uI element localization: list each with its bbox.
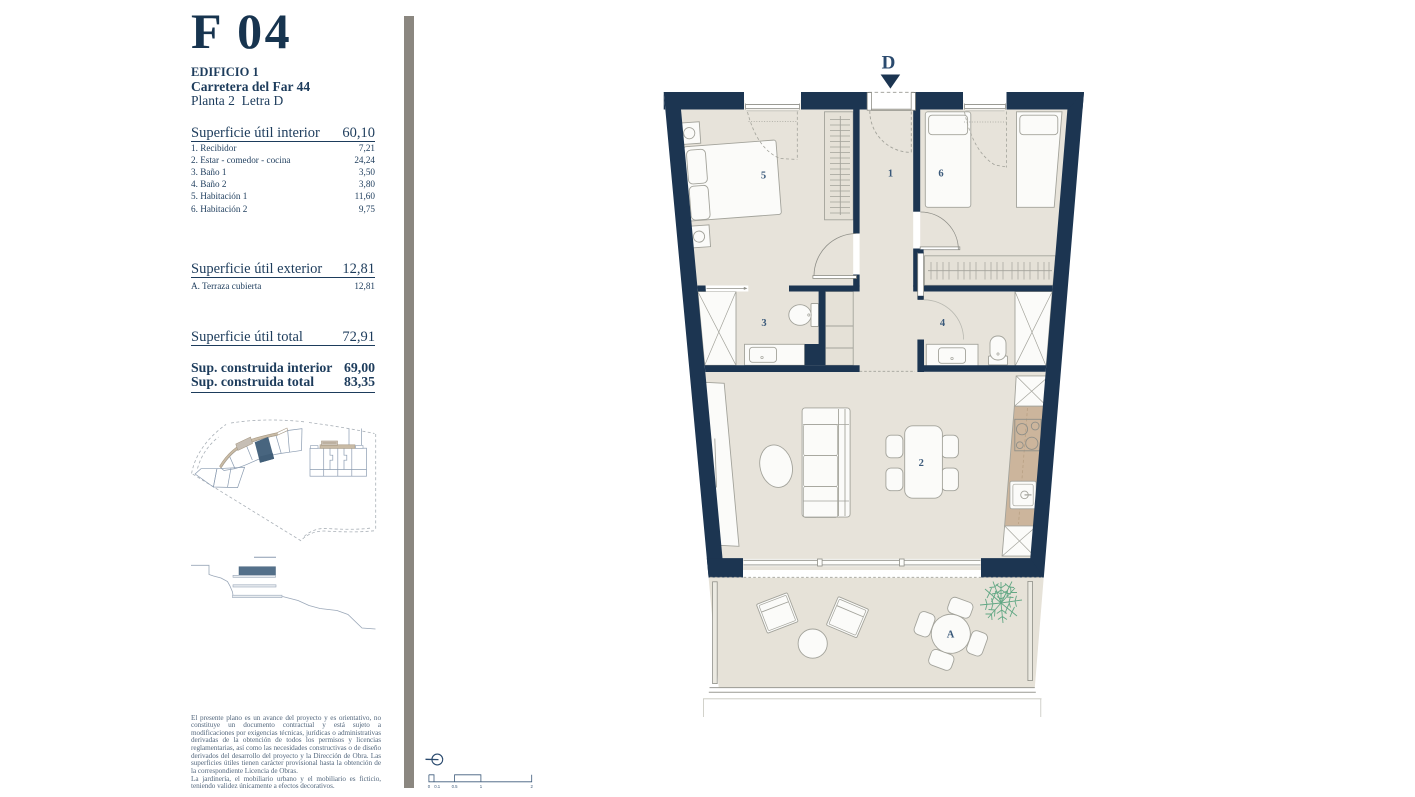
svg-text:5: 5 bbox=[761, 171, 766, 182]
svg-text:3: 3 bbox=[761, 318, 766, 329]
svg-text:6: 6 bbox=[938, 169, 943, 180]
svg-text:2: 2 bbox=[531, 784, 534, 789]
svg-text:D: D bbox=[882, 53, 896, 74]
svg-text:1: 1 bbox=[888, 169, 893, 180]
svg-text:0.1: 0.1 bbox=[434, 784, 441, 789]
svg-text:4: 4 bbox=[940, 318, 946, 329]
svg-text:2: 2 bbox=[919, 458, 924, 469]
svg-text:A: A bbox=[947, 630, 955, 641]
svg-text:0.5: 0.5 bbox=[452, 784, 459, 789]
svg-text:1: 1 bbox=[480, 784, 483, 789]
svg-text:0: 0 bbox=[428, 784, 431, 789]
